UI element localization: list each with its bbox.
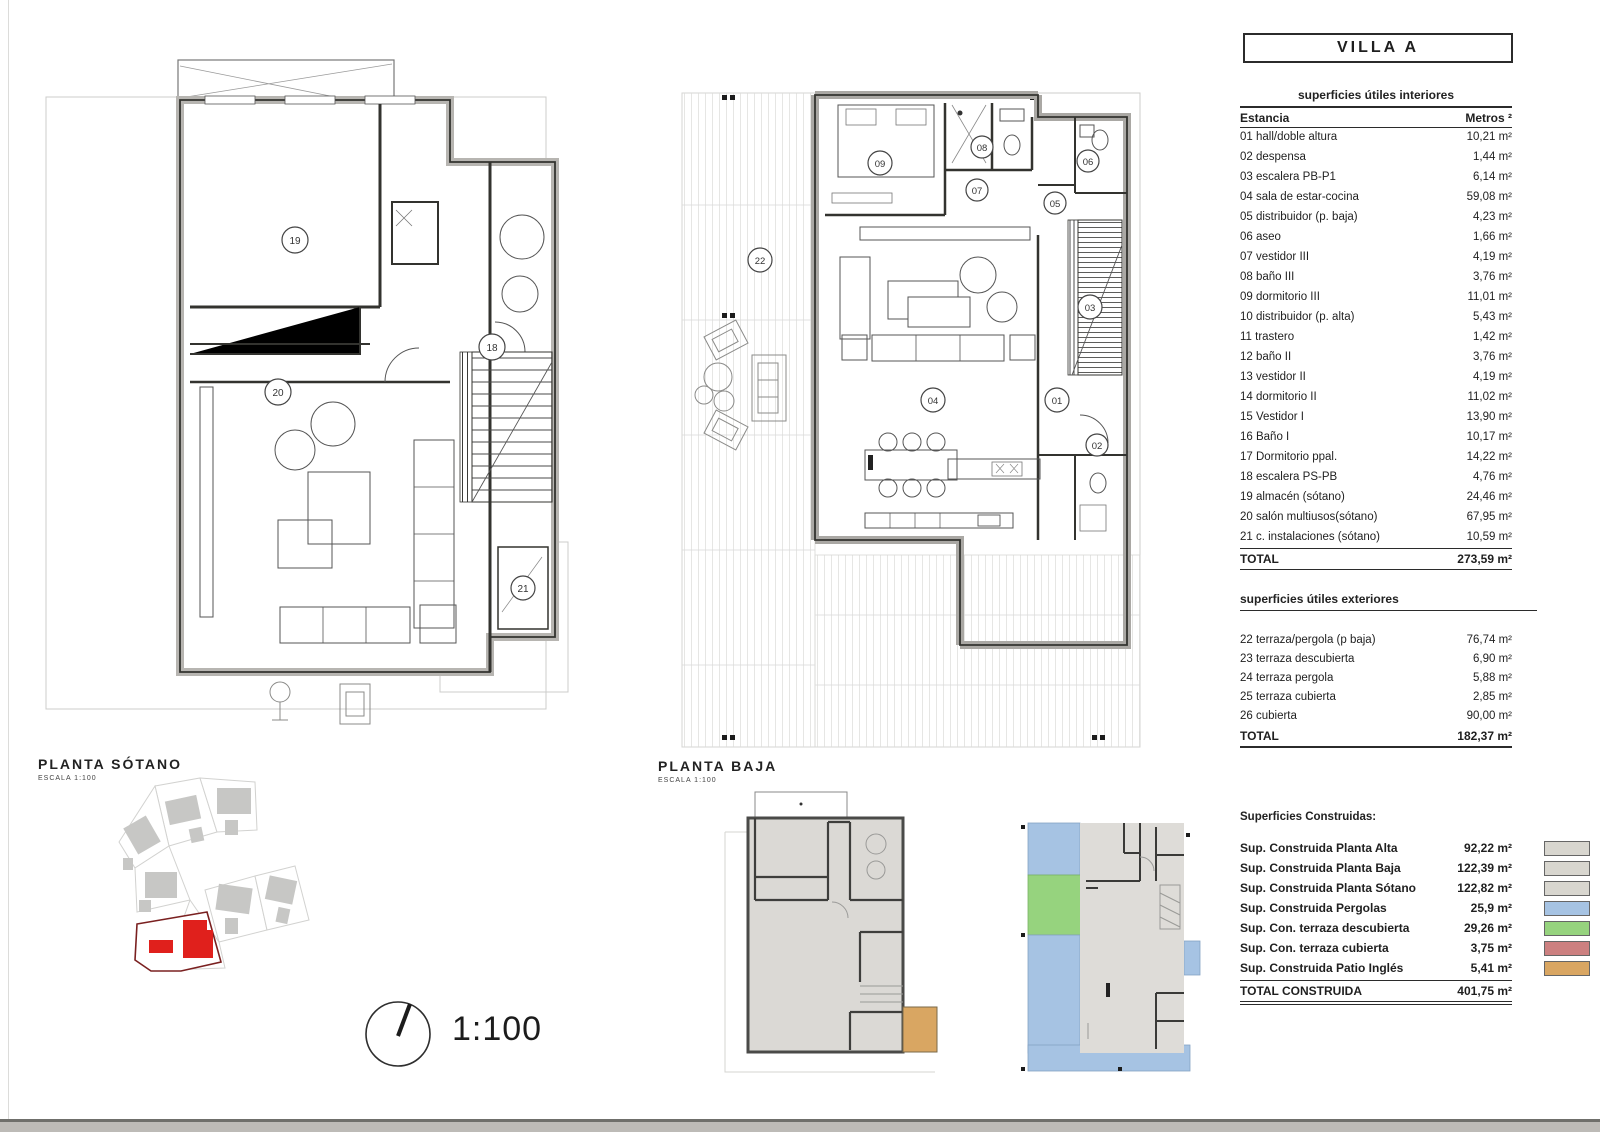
built-table-rows: Sup. Construida Planta Alta 92,22 m² Sup… [1240,838,1592,978]
built-label: Sup. Construida Planta Sótano [1240,881,1440,895]
table-row: 03 escalera PB-P1 6,14 m² [1240,167,1512,187]
room-label: 14 dormitorio II [1240,391,1317,403]
room-area: 4,19 m² [1473,371,1512,383]
site-plan-map [95,772,315,972]
badge-06: 06 [1083,157,1094,168]
room-area: 6,14 m² [1473,171,1512,183]
room-area: 13,90 m² [1467,411,1512,423]
room-label: 18 escalera PS-PB [1240,471,1337,483]
legend-color-swatch [1544,861,1590,876]
room-area: 67,95 m² [1467,511,1512,523]
legend-color-swatch [1544,881,1590,896]
badge-21: 21 [517,584,529,595]
built-total-value: 401,75 m² [1457,984,1512,998]
badge-05: 05 [1050,199,1061,210]
badge-02: 02 [1092,441,1103,452]
room-label: 26 cubierta [1240,710,1297,722]
room-area: 5,88 m² [1473,672,1512,684]
table-row: 14 dormitorio II 11,02 m² [1240,387,1512,407]
col-metros: Metros ² [1465,111,1512,125]
room-label: 15 Vestidor I [1240,411,1304,423]
page-edge-left [8,0,9,1120]
mini-plan-baja-construida [700,782,940,1077]
room-label: 09 dormitorio III [1240,291,1320,303]
table-row: 11 trastero 1,42 m² [1240,327,1512,347]
table-row: 12 baño II 3,76 m² [1240,347,1512,367]
table-row: 07 vestidor III 4,19 m² [1240,247,1512,267]
room-area: 2,85 m² [1473,691,1512,703]
room-label: 19 almacén (sótano) [1240,491,1345,503]
room-label: 07 vestidor III [1240,251,1309,263]
table-row: 05 distribuidor (p. baja) 4,23 m² [1240,207,1512,227]
exterior-total-row: TOTAL 182,37 m² [1240,726,1512,748]
table-row: Sup. Con. terraza cubierta 3,75 m² [1240,938,1592,958]
badge-08: 08 [977,143,988,154]
room-area: 6,90 m² [1473,653,1512,665]
interior-table-header: Estancia Metros ² [1240,106,1512,128]
plan-baja-label: PLANTA BAJA [658,758,777,774]
table-row: 26 cubierta 90,00 m² [1240,706,1512,725]
badge-19: 19 [289,236,301,247]
table-row: 21 c. instalaciones (sótano) 10,59 m² [1240,527,1512,547]
plan-baja-title: PLANTA BAJA ESCALA 1:100 [658,758,777,784]
room-label: 10 distribuidor (p. alta) [1240,311,1354,323]
table-row: Sup. Construida Planta Baja 122,39 m² [1240,858,1592,878]
table-row: 22 terraza/pergola (p baja) 76,74 m² [1240,630,1512,649]
room-label: 13 vestidor II [1240,371,1306,383]
room-label: 04 sala de estar-cocina [1240,191,1359,203]
built-area: 29,26 m² [1440,921,1512,935]
badge-18: 18 [486,343,498,354]
exterior-table-title: superficies útiles exteriores [1240,592,1537,611]
badge-09: 09 [875,159,886,170]
built-label: Sup. Construida Pergolas [1240,901,1440,915]
badge-22: 22 [755,256,766,267]
table-row: 19 almacén (sótano) 24,46 m² [1240,487,1512,507]
built-label: Sup. Con. terraza descubierta [1240,921,1440,935]
table-row: Sup. Construida Planta Alta 92,22 m² [1240,838,1592,858]
col-estancia: Estancia [1240,111,1289,125]
interior-table-rows: 01 hall/doble altura 10,21 m² 02 despens… [1240,127,1512,547]
table-row: 08 baño III 3,76 m² [1240,267,1512,287]
built-total-underline [1240,1004,1512,1005]
mini-plan-construida-colores [988,793,1203,1073]
room-label: 21 c. instalaciones (sótano) [1240,531,1380,543]
built-label: Sup. Construida Planta Alta [1240,841,1440,855]
built-area: 122,39 m² [1440,861,1512,875]
exterior-table-rows: 22 terraza/pergola (p baja) 76,74 m² 23 … [1240,630,1512,725]
built-label: Sup. Con. terraza cubierta [1240,941,1440,955]
table-row: 15 Vestidor I 13,90 m² [1240,407,1512,427]
legend-color-swatch [1544,841,1590,856]
room-area: 4,23 m² [1473,211,1512,223]
built-table-title: Superficies Construidas: [1240,811,1376,823]
legend-color-swatch [1544,961,1590,976]
legend-color-swatch [1544,941,1590,956]
table-row: 10 distribuidor (p. alta) 5,43 m² [1240,307,1512,327]
room-label: 12 baño II [1240,351,1291,363]
table-row: 20 salón multiusos(sótano) 67,95 m² [1240,507,1512,527]
table-row: 23 terraza descubierta 6,90 m² [1240,649,1512,668]
table-row: 13 vestidor II 4,19 m² [1240,367,1512,387]
room-area: 10,21 m² [1467,131,1512,143]
scale-label: 1:100 [452,1010,542,1049]
room-area: 1,44 m² [1473,151,1512,163]
interior-total-value: 273,59 m² [1457,552,1512,566]
built-area: 3,75 m² [1440,941,1512,955]
room-area: 3,76 m² [1473,351,1512,363]
room-label: 03 escalera PB-P1 [1240,171,1336,183]
table-row: 04 sala de estar-cocina 59,08 m² [1240,187,1512,207]
room-area: 76,74 m² [1467,634,1512,646]
room-label: 06 aseo [1240,231,1281,243]
villa-title: VILLA A [1337,39,1419,57]
built-total-label: TOTAL CONSTRUIDA [1240,984,1362,998]
sheet: { "sheet": { "title": "VILLA A", "scale_… [0,0,1600,1132]
legend-color-swatch [1544,921,1590,936]
table-row: 01 hall/doble altura 10,21 m² [1240,127,1512,147]
room-label: 17 Dormitorio ppal. [1240,451,1337,463]
room-area: 59,08 m² [1467,191,1512,203]
room-label: 02 despensa [1240,151,1306,163]
summary-panel: VILLA A superficies útiles interiores Es… [1240,30,1600,1030]
room-label: 11 trastero [1240,331,1294,343]
room-area: 1,66 m² [1473,231,1512,243]
room-area: 11,01 m² [1467,291,1512,303]
room-label: 01 hall/doble altura [1240,131,1337,143]
room-label: 25 terraza cubierta [1240,691,1336,703]
room-area: 10,17 m² [1467,431,1512,443]
table-row: 17 Dormitorio ppal. 14,22 m² [1240,447,1512,467]
plan-sotano-drawing: 19 18 20 21 [40,52,580,767]
room-area: 14,22 m² [1467,451,1512,463]
legend-color-swatch [1544,901,1590,916]
room-label: 22 terraza/pergola (p baja) [1240,634,1376,646]
badge-01: 01 [1052,396,1063,407]
room-label: 05 distribuidor (p. baja) [1240,211,1358,223]
interior-table-title: superficies útiles interiores [1240,88,1512,102]
interior-total-label: TOTAL [1240,552,1279,566]
room-label: 20 salón multiusos(sótano) [1240,511,1377,523]
table-row: Sup. Construida Planta Sótano 122,82 m² [1240,878,1592,898]
room-area: 10,59 m² [1467,531,1512,543]
patio-ingles-tan-area [903,1007,937,1052]
north-scale-icon [358,992,438,1072]
built-area: 92,22 m² [1440,841,1512,855]
plan-baja-drawing: 09 08 07 06 05 03 22 04 01 02 [660,85,1160,755]
room-area: 4,76 m² [1473,471,1512,483]
pergola-blue-area-left [1028,935,1080,1053]
table-row: Sup. Construida Pergolas 25,9 m² [1240,898,1592,918]
exterior-total-value: 182,37 m² [1457,729,1512,743]
villa-annex-red [149,940,173,953]
room-label: 16 Baño I [1240,431,1289,443]
table-row: 02 despensa 1,44 m² [1240,147,1512,167]
pergola-blue-area-right [1184,941,1200,975]
badge-07: 07 [972,186,983,197]
built-label: Sup. Construida Planta Baja [1240,861,1440,875]
table-row: 09 dormitorio III 11,01 m² [1240,287,1512,307]
table-row: 06 aseo 1,66 m² [1240,227,1512,247]
room-label: 23 terraza descubierta [1240,653,1354,665]
room-area: 90,00 m² [1467,710,1512,722]
page-edge-band [0,1122,1600,1132]
room-area: 1,42 m² [1473,331,1512,343]
built-total-row: TOTAL CONSTRUIDA 401,75 m² [1240,980,1512,1002]
table-row: 25 terraza cubierta 2,85 m² [1240,687,1512,706]
room-label: 08 baño III [1240,271,1294,283]
terraza-descubierta-green-area [1028,875,1082,935]
villa-title-box: VILLA A [1243,33,1513,63]
table-row: 16 Baño I 10,17 m² [1240,427,1512,447]
room-area: 11,02 m² [1467,391,1512,403]
badge-04: 04 [928,396,939,407]
built-area: 5,41 m² [1440,961,1512,975]
built-area: 122,82 m² [1440,881,1512,895]
built-area: 25,9 m² [1440,901,1512,915]
table-row: Sup. Con. terraza descubierta 29,26 m² [1240,918,1592,938]
table-row: Sup. Construida Patio Inglés 5,41 m² [1240,958,1592,978]
room-label: 24 terraza pergola [1240,672,1333,684]
room-area: 5,43 m² [1473,311,1512,323]
badge-03: 03 [1085,303,1096,314]
plan-sotano-label: PLANTA SÓTANO [38,756,182,772]
table-row: 18 escalera PS-PB 4,76 m² [1240,467,1512,487]
built-label: Sup. Construida Patio Inglés [1240,961,1440,975]
badge-20: 20 [272,388,284,399]
room-area: 3,76 m² [1473,271,1512,283]
room-area: 24,46 m² [1467,491,1512,503]
exterior-total-label: TOTAL [1240,729,1279,743]
table-row: 24 terraza pergola 5,88 m² [1240,668,1512,687]
room-area: 4,19 m² [1473,251,1512,263]
interior-total-row: TOTAL 273,59 m² [1240,548,1512,570]
pergola-blue-area-top [1028,823,1080,875]
